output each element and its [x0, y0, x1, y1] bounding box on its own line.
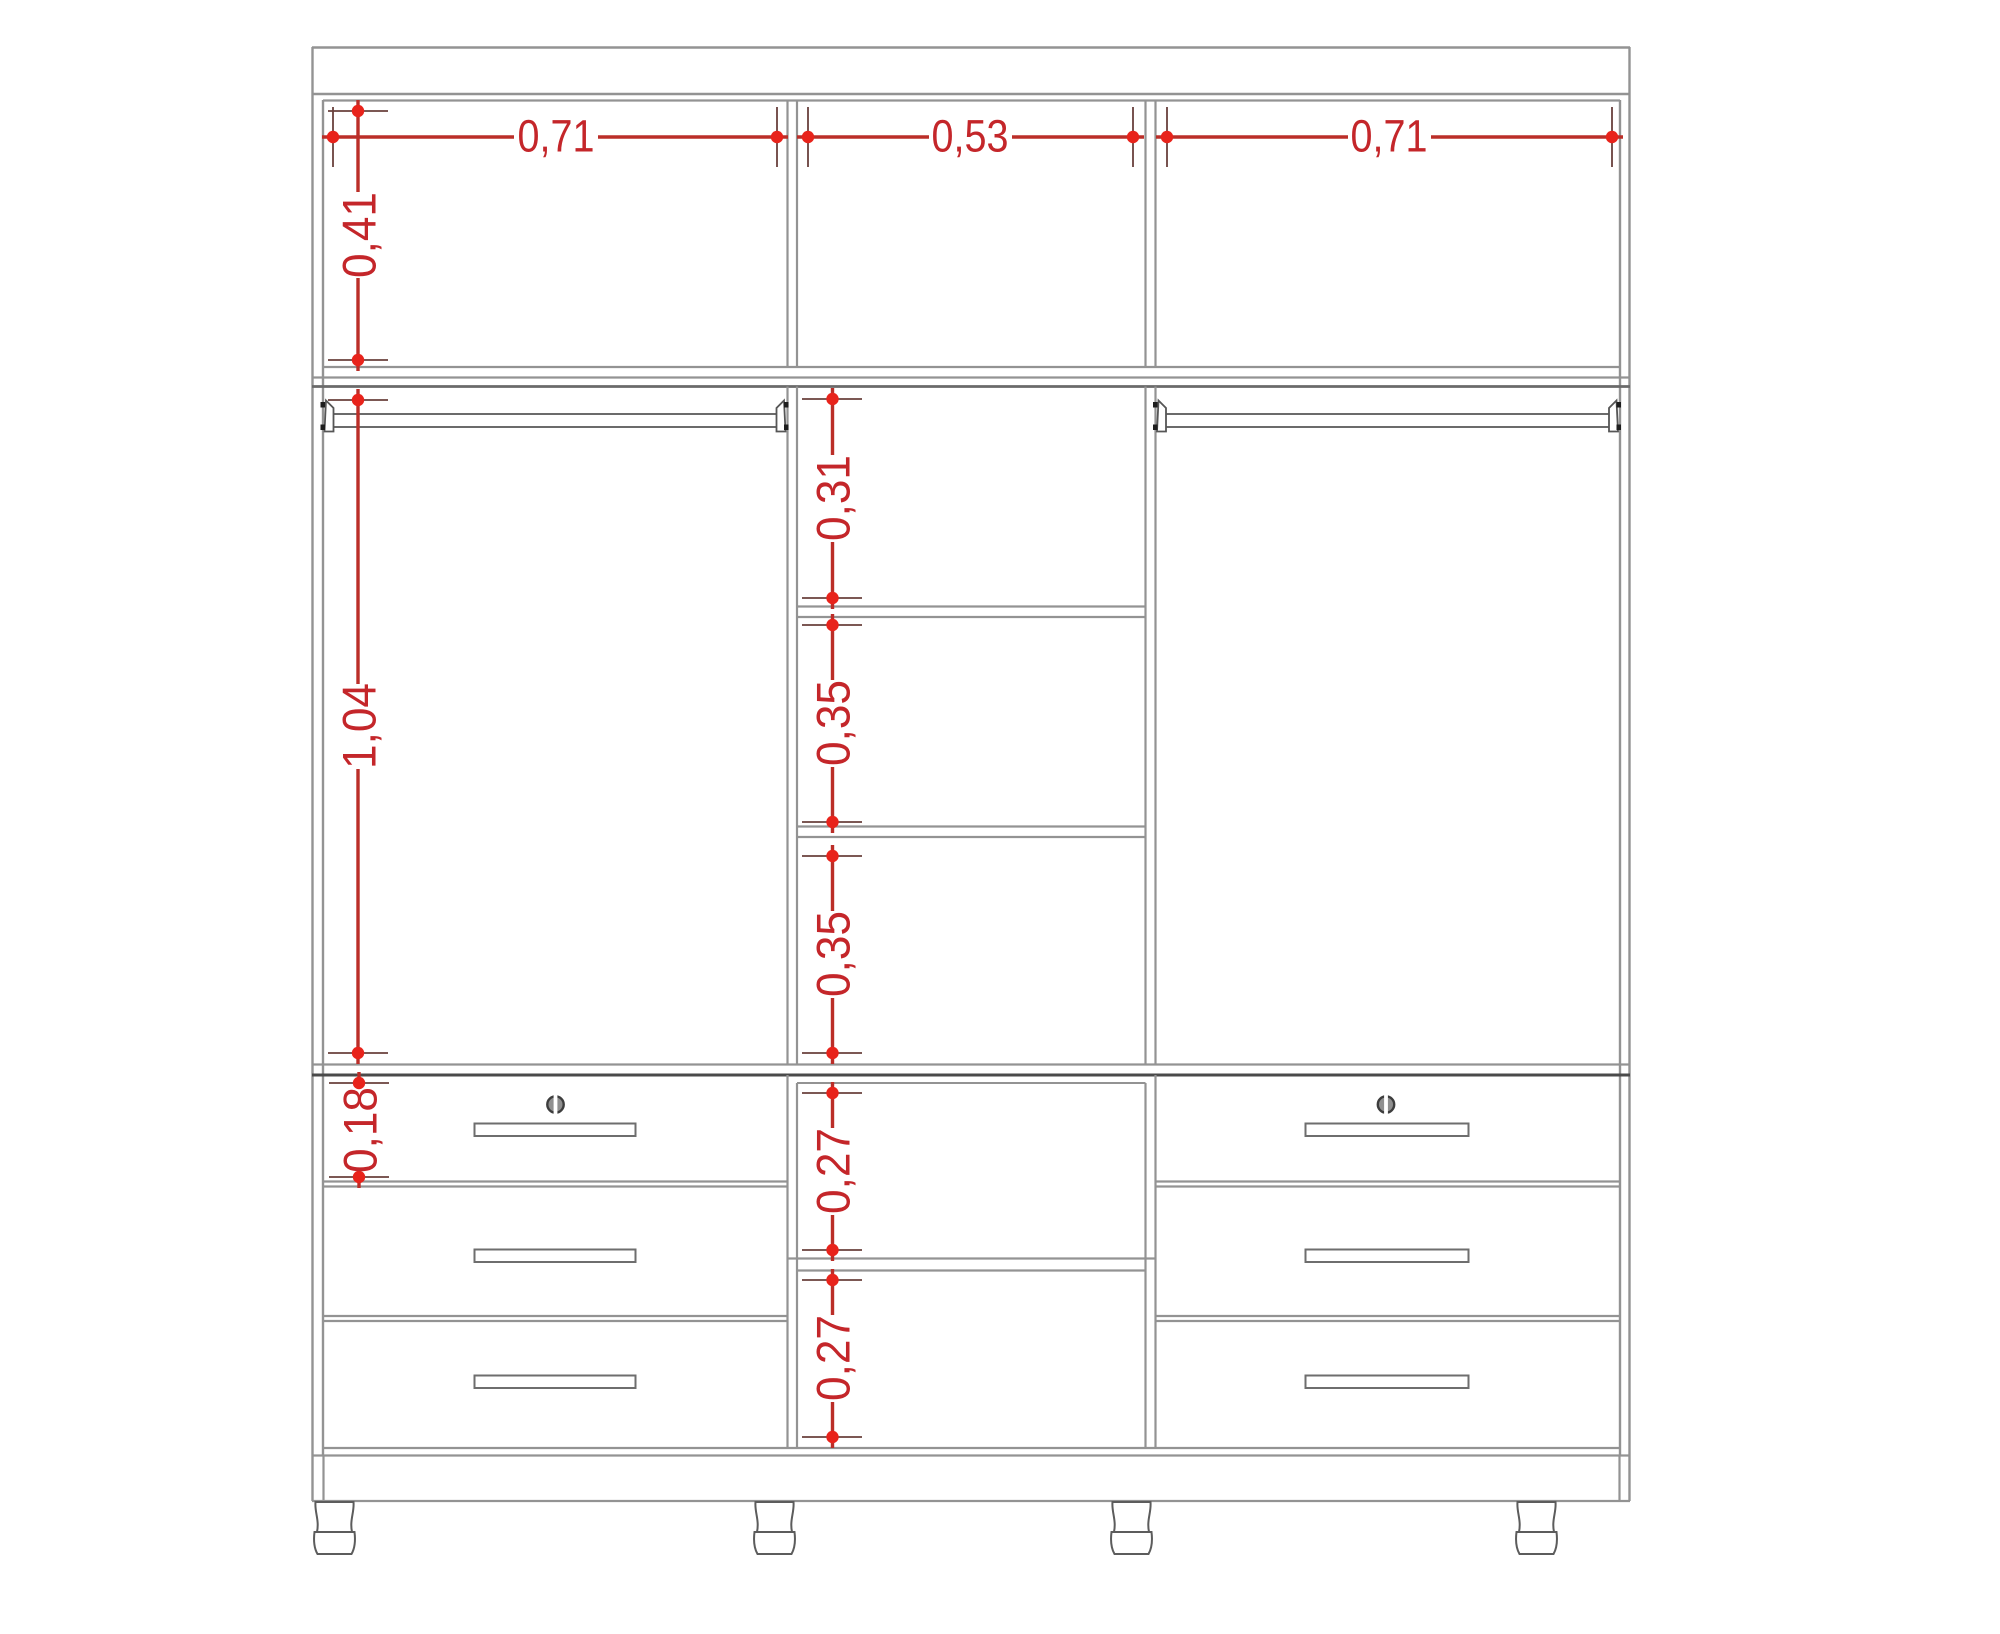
svg-text:0,18: 0,18 [334, 1087, 387, 1173]
svg-text:0,35: 0,35 [807, 680, 860, 766]
svg-text:0,71: 0,71 [518, 111, 595, 162]
svg-text:0,27: 0,27 [807, 1128, 860, 1214]
svg-text:0,53: 0,53 [932, 111, 1009, 162]
svg-text:0,35: 0,35 [807, 911, 860, 997]
svg-text:0,71: 0,71 [1351, 111, 1428, 162]
svg-text:0,31: 0,31 [807, 455, 860, 541]
svg-text:0,27: 0,27 [807, 1315, 860, 1401]
svg-text:1,04: 1,04 [333, 683, 386, 769]
svg-text:0,41: 0,41 [333, 192, 386, 278]
